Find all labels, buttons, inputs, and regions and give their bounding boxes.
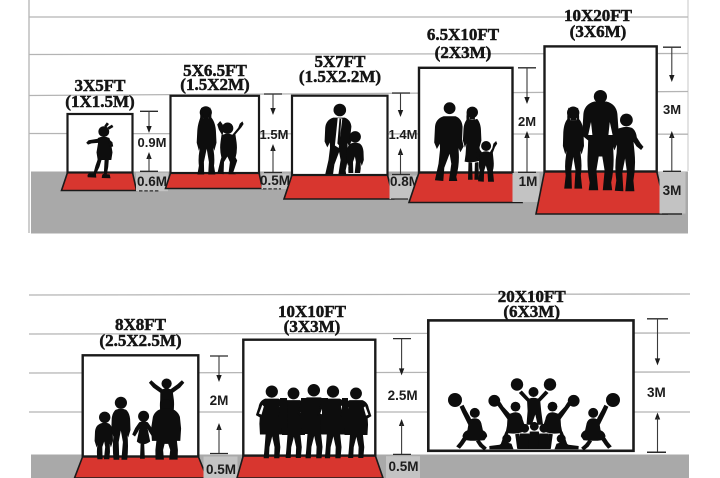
svg-text:1M: 1M [519,174,538,189]
svg-text:(2.5X2.5M): (2.5X2.5M) [99,331,181,350]
svg-text:0.5M: 0.5M [206,462,236,477]
svg-text:3M: 3M [663,183,682,198]
svg-text:1.5M: 1.5M [260,127,289,142]
svg-text:(3X3M): (3X3M) [284,317,341,336]
svg-text:(3X6M): (3X6M) [570,22,627,41]
svg-text:2M: 2M [210,393,229,408]
svg-text:2M: 2M [518,114,536,129]
svg-text:2.5M: 2.5M [388,388,418,403]
svg-text:1.4M: 1.4M [389,127,418,142]
svg-text:0.6M: 0.6M [137,174,167,189]
svg-text:(1.5X2M): (1.5X2M) [180,75,249,94]
svg-text:3M: 3M [647,385,666,400]
svg-text:(6X3M): (6X3M) [503,302,560,321]
svg-text:(2X3M): (2X3M) [435,43,492,62]
svg-text:0.5M: 0.5M [260,173,290,188]
svg-text:(1X1.5M): (1X1.5M) [65,92,134,111]
svg-text:0.5M: 0.5M [388,459,418,474]
svg-text:(1.5X2.2M): (1.5X2.2M) [299,67,381,86]
svg-text:0.9M: 0.9M [138,135,167,150]
svg-text:6.5X10FT: 6.5X10FT [427,25,500,44]
svg-text:3M: 3M [663,102,681,117]
